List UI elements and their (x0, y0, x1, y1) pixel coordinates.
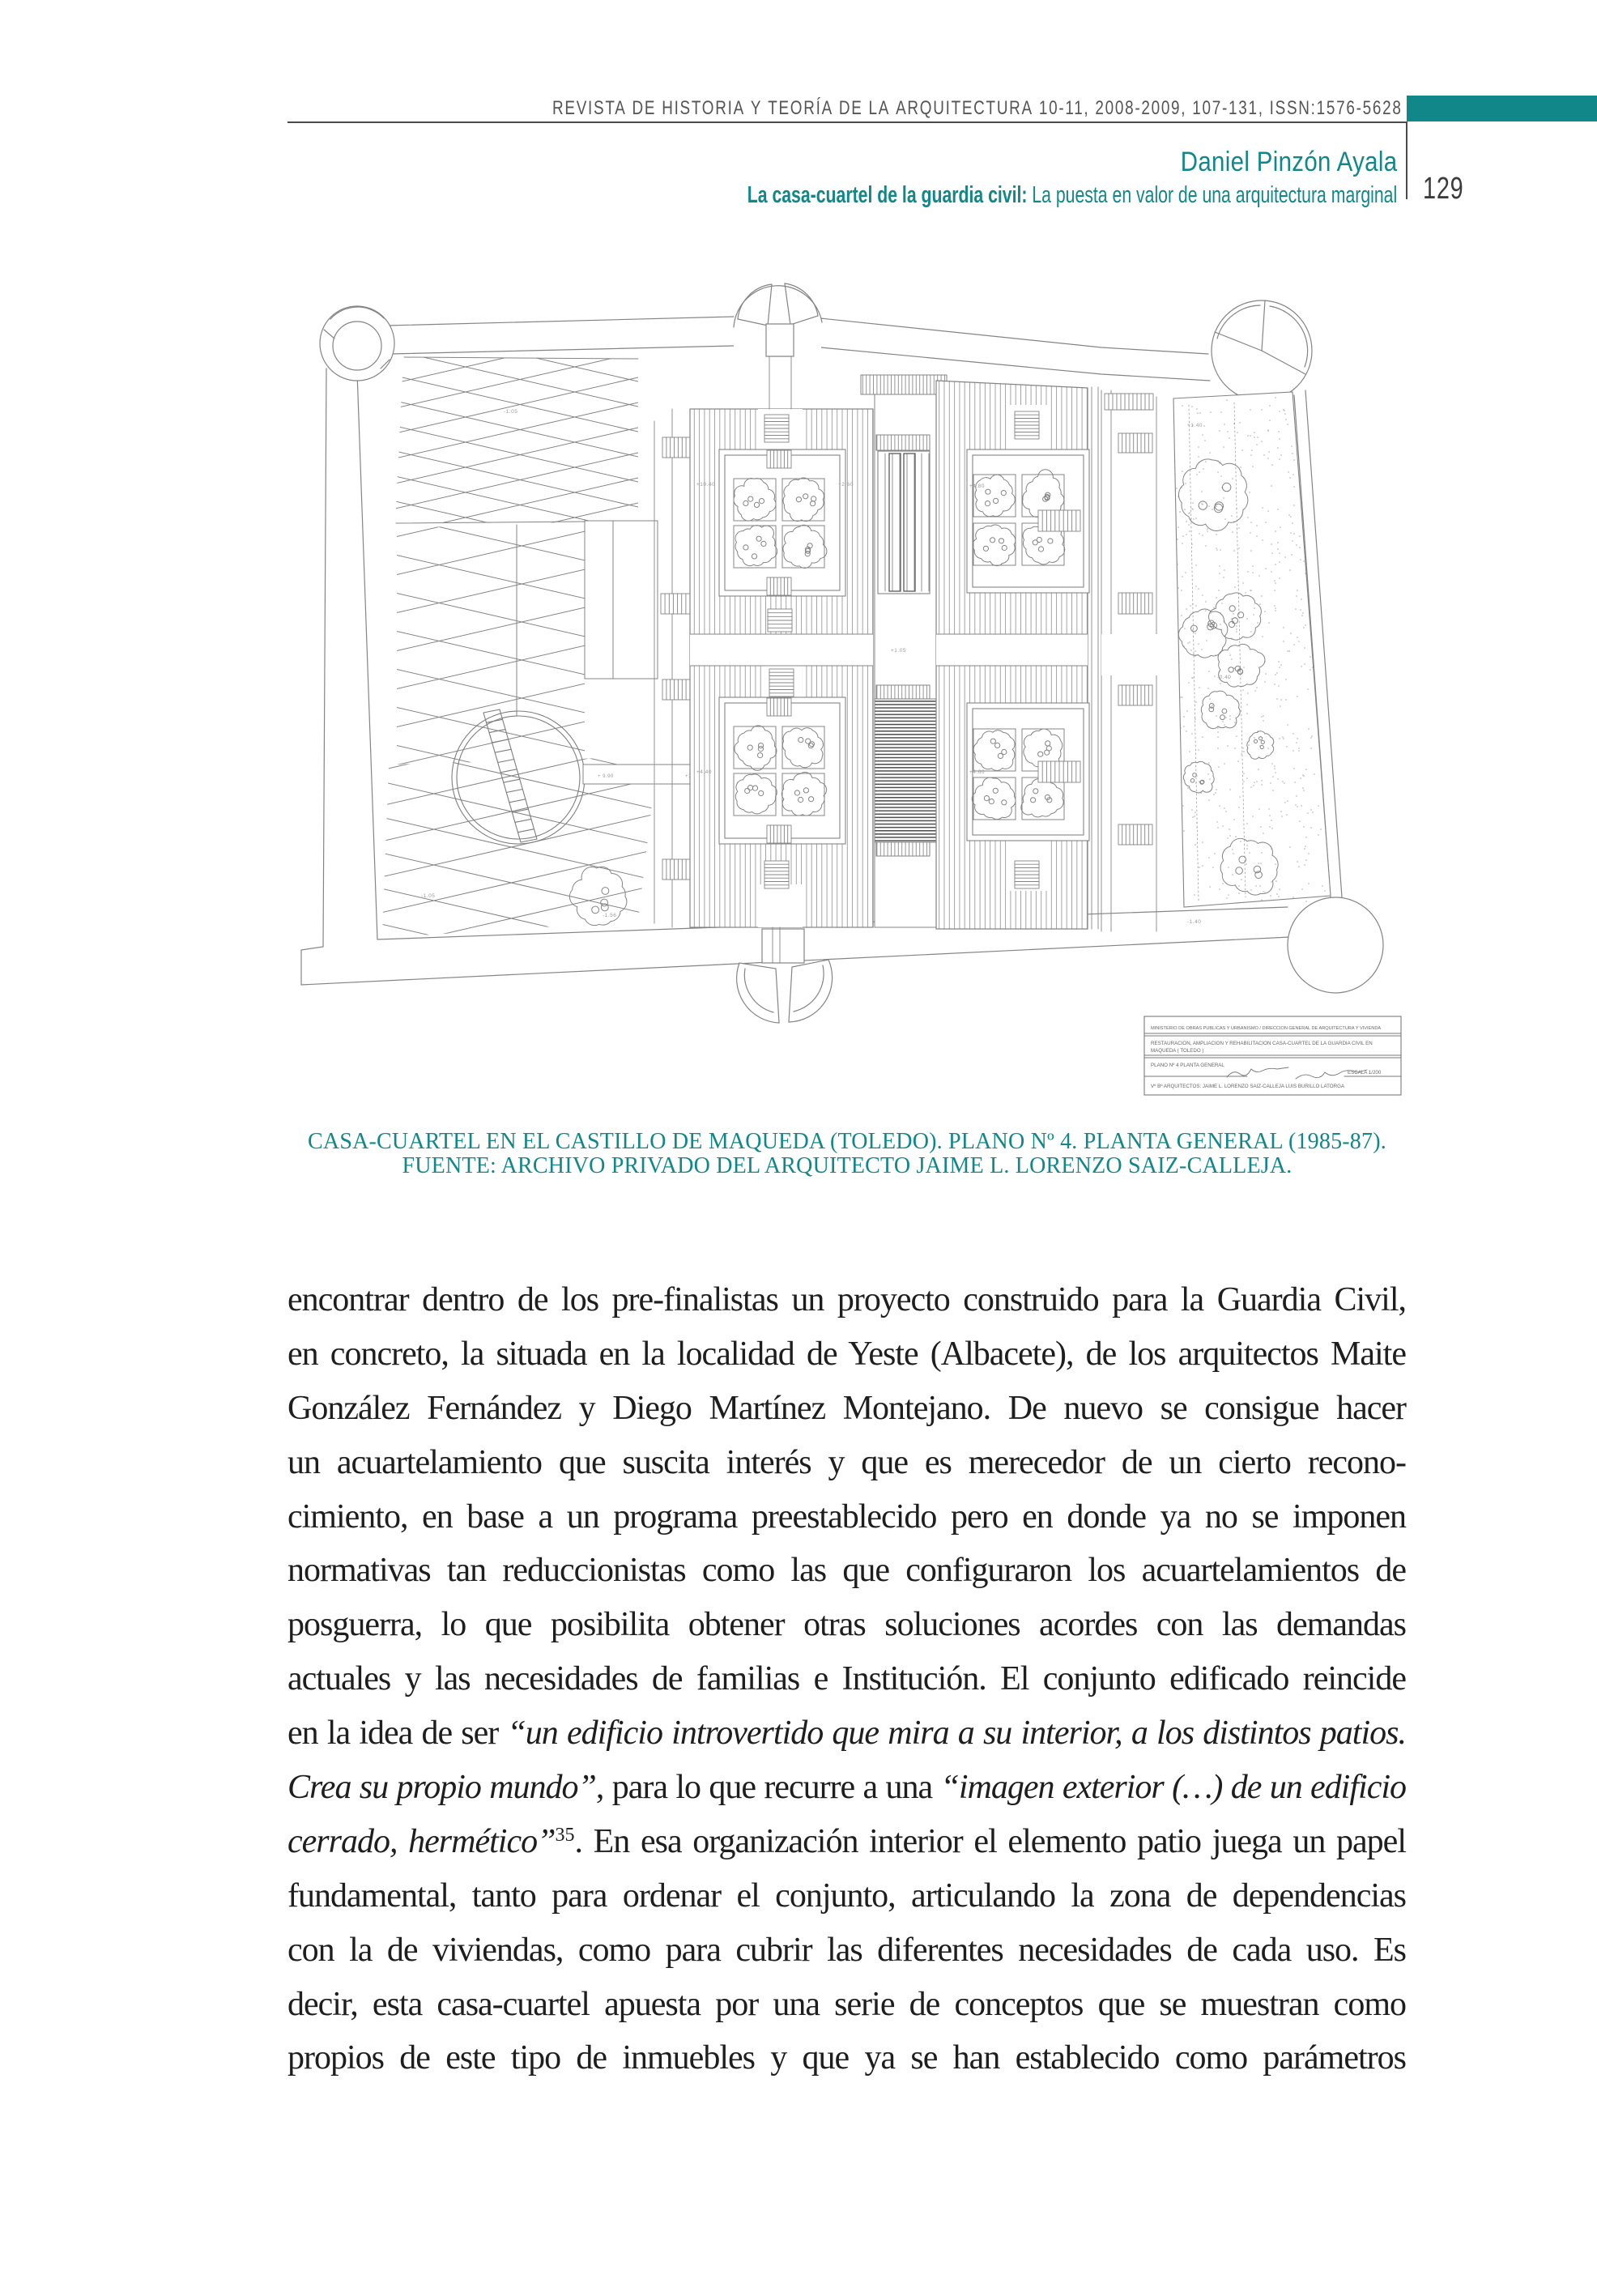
svg-text:MAQUEDA ( TOLEDO ): MAQUEDA ( TOLEDO ) (1151, 1048, 1203, 1054)
svg-text:-1.05: -1.05 (421, 893, 435, 899)
svg-text:+4.80: +4.80 (969, 483, 985, 489)
svg-text:PLANO Nº 4 PLANTA GENERAL: PLANO Nº 4 PLANTA GENERAL (1151, 1063, 1224, 1068)
svg-text:MINISTERIO DE OBRAS PUBLICAS Y: MINISTERIO DE OBRAS PUBLICAS Y URBANISMO… (1151, 1026, 1381, 1031)
svg-text:+1.40: +1.40 (1187, 423, 1203, 428)
svg-text:-0.40: -0.40 (1217, 675, 1231, 680)
svg-text:+ 9.90: + 9.90 (598, 774, 614, 779)
svg-text:+1.05: +1.05 (891, 648, 906, 654)
svg-text:+10.40: +10.40 (696, 482, 715, 488)
svg-text:-1.40: -1.40 (1187, 919, 1201, 925)
svg-text:RESTAURACION, AMPLIACION Y REH: RESTAURACION, AMPLIACION Y REHABILITACIO… (1151, 1041, 1373, 1046)
svg-text:-1.05: -1.05 (504, 409, 517, 415)
svg-text:+4.60: +4.60 (969, 769, 985, 775)
svg-text:Vº Bº ARQUITECTOS: JAIME L.: Vº Bº ARQUITECTOS: JAIME L. LORENZO SAIZ… (1151, 1084, 1345, 1089)
svg-text:+2.60: +2.60 (838, 482, 854, 488)
svg-text:-1.56: -1.56 (603, 913, 616, 918)
svg-text:+4.40: +4.40 (696, 769, 712, 775)
